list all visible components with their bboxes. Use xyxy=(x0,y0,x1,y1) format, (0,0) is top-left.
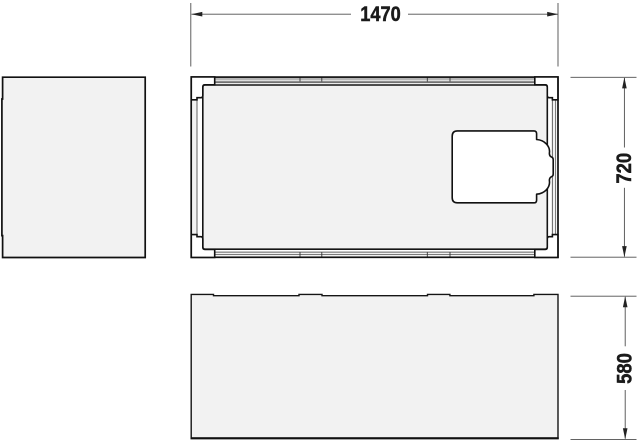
svg-text:580: 580 xyxy=(612,353,636,384)
svg-text:1470: 1470 xyxy=(360,2,401,26)
svg-text:720: 720 xyxy=(612,153,636,184)
